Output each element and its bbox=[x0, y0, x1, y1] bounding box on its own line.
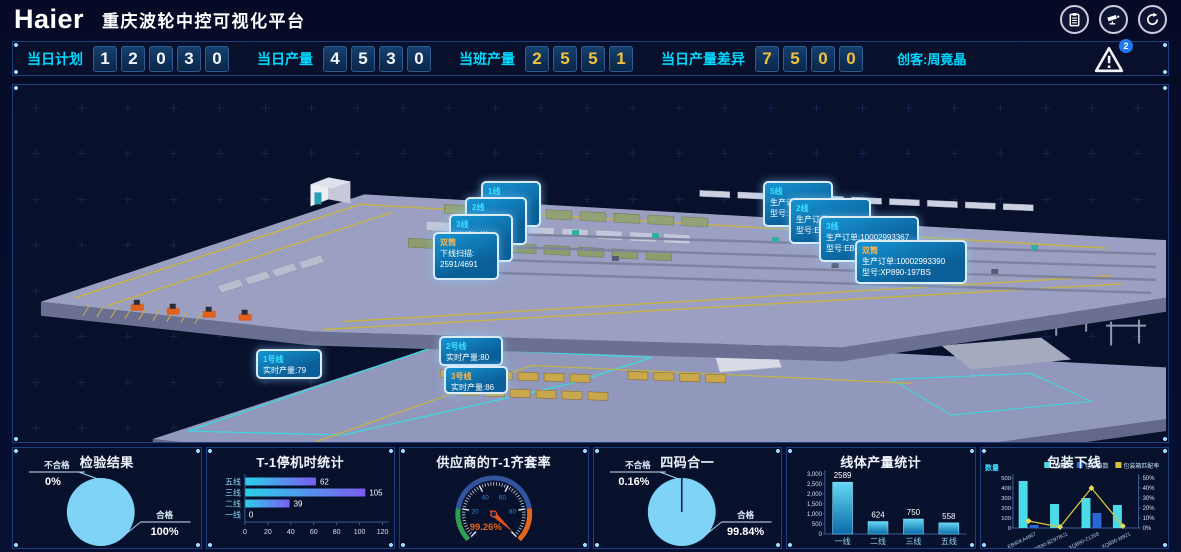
callout-line3-output[interactable]: 3号线 实时产量:86 bbox=[444, 366, 508, 394]
svg-text:60: 60 bbox=[499, 495, 507, 502]
kpi-shift-output: 当班产量 2 5 5 1 bbox=[459, 46, 635, 72]
callout-line2-output[interactable]: 2号线 实时产量:80 bbox=[439, 336, 503, 366]
svg-text:62: 62 bbox=[319, 477, 328, 486]
svg-text:99.26%: 99.26% bbox=[470, 522, 503, 533]
svg-text:20%: 20% bbox=[1142, 506, 1155, 512]
cctv-icon bbox=[1106, 12, 1121, 27]
svg-text:80: 80 bbox=[332, 529, 340, 536]
header: Haier 重庆波轮中控可视化平台 bbox=[0, 0, 1181, 38]
svg-text:120: 120 bbox=[376, 529, 388, 536]
kpi-output-gap: 当日产量差异 7 5 0 0 bbox=[661, 46, 865, 72]
digit-box: 0 bbox=[811, 46, 835, 72]
bar bbox=[1081, 498, 1090, 528]
refresh-icon[interactable] bbox=[1138, 5, 1167, 34]
svg-text:500: 500 bbox=[812, 522, 823, 528]
svg-text:10%: 10% bbox=[1142, 516, 1155, 522]
callout-line: 下线扫描: bbox=[440, 248, 492, 259]
kpi-label: 当日产量 bbox=[257, 49, 313, 69]
callout-title: 3号线 bbox=[451, 371, 501, 382]
factory-3d-view bbox=[13, 85, 1168, 442]
svg-text:三线: 三线 bbox=[905, 536, 921, 546]
callout-title: 1线 bbox=[488, 186, 534, 197]
svg-text:2589: 2589 bbox=[834, 471, 852, 480]
svg-text:EB80KA4867: EB80KA4867 bbox=[1006, 531, 1037, 548]
bar bbox=[1123, 528, 1132, 529]
digit-box: 1 bbox=[609, 46, 633, 72]
report-icon[interactable] bbox=[1060, 5, 1089, 34]
clipboard-icon bbox=[1067, 12, 1082, 27]
kpi-label: 当日计划 bbox=[27, 49, 83, 69]
digit-box: 5 bbox=[581, 46, 605, 72]
creator-label: 创客:周竟晶 bbox=[897, 49, 966, 68]
svg-text:40: 40 bbox=[482, 495, 490, 502]
svg-text:1,500: 1,500 bbox=[807, 502, 823, 508]
digit-box: 0 bbox=[839, 46, 863, 72]
digit-box: 2 bbox=[525, 46, 549, 72]
gauge-segment bbox=[458, 508, 469, 539]
svg-text:100%: 100% bbox=[151, 526, 179, 538]
page-title: 重庆波轮中控可视化平台 bbox=[102, 7, 306, 32]
digit-box: 0 bbox=[205, 46, 229, 72]
dashboard: Haier 重庆波轮中控可视化平台 当日计划 1 2 0 3 0 当日产量 4 bbox=[0, 0, 1181, 552]
callout-twin-tub-scan[interactable]: 双筒 下线扫描: 2591/4691 bbox=[433, 232, 499, 280]
callout-title: 双筒 bbox=[862, 245, 960, 256]
charts-row: 检验结果 不合格0%合格100% T-1停机时统计 五线62三线105二线39一… bbox=[12, 447, 1169, 549]
kpi-label: 当班产量 bbox=[459, 49, 515, 69]
svg-text:2,000: 2,000 bbox=[807, 492, 823, 498]
callout-line: 生产订单:10002993390 bbox=[862, 256, 960, 267]
bar bbox=[1092, 513, 1101, 528]
callout-line: 实时产量:86 bbox=[451, 382, 501, 393]
digit-box: 5 bbox=[553, 46, 577, 72]
pie-slice bbox=[67, 478, 135, 546]
svg-text:558: 558 bbox=[942, 512, 956, 521]
digit-box: 5 bbox=[351, 46, 375, 72]
chart-title: 四码合一 bbox=[594, 452, 782, 471]
svg-text:39: 39 bbox=[293, 499, 302, 508]
svg-text:1,000: 1,000 bbox=[807, 512, 823, 518]
refresh-arrow-icon bbox=[1145, 12, 1160, 27]
bar bbox=[1029, 525, 1038, 528]
chart-title: 供应商的T-1齐套率 bbox=[400, 452, 588, 471]
svg-text:105: 105 bbox=[369, 488, 383, 497]
svg-text:0%: 0% bbox=[45, 476, 61, 488]
callout-title: 双筒 bbox=[440, 237, 492, 248]
callout-title: 3线 bbox=[456, 219, 506, 230]
gauge-segment bbox=[519, 508, 530, 539]
callout-line: 2591/4691 bbox=[440, 259, 492, 270]
callout-title: 2线 bbox=[796, 203, 864, 214]
chart-packing-offline-panel: 包装下线 数量01002003004005000%10%20%30%40%50%… bbox=[980, 447, 1170, 549]
digit-box: 0 bbox=[407, 46, 431, 72]
rate-line bbox=[1028, 488, 1122, 527]
svg-text:100: 100 bbox=[1001, 516, 1011, 522]
digit-box: 1 bbox=[93, 46, 117, 72]
svg-text:0: 0 bbox=[819, 532, 823, 538]
alert-warning-button[interactable]: 2 bbox=[1092, 44, 1126, 74]
callout-line: 实时产量:79 bbox=[263, 365, 315, 376]
svg-text:40%: 40% bbox=[1142, 486, 1155, 492]
bar bbox=[833, 482, 853, 534]
svg-text:500: 500 bbox=[1001, 476, 1011, 482]
svg-text:三线: 三线 bbox=[224, 487, 240, 497]
chart-title: T-1停机时统计 bbox=[207, 452, 395, 471]
callout-title: 2线 bbox=[472, 202, 520, 213]
bar bbox=[244, 478, 315, 486]
callout-title: 2号线 bbox=[446, 341, 496, 352]
svg-text:3,000: 3,000 bbox=[807, 472, 823, 478]
svg-text:五线: 五线 bbox=[941, 536, 957, 546]
digit-box: 2 bbox=[121, 46, 145, 72]
svg-text:XQB80-Z1268: XQB80-Z1268 bbox=[1067, 531, 1099, 548]
chart-title: 包装下线 bbox=[981, 452, 1169, 471]
svg-text:200: 200 bbox=[1001, 506, 1011, 512]
bar bbox=[903, 519, 923, 534]
digit-box: 4 bbox=[323, 46, 347, 72]
svg-text:0%: 0% bbox=[1142, 526, 1151, 532]
alert-count-badge: 2 bbox=[1119, 39, 1133, 53]
kpi-daily-output: 当日产量 4 5 3 0 bbox=[257, 46, 433, 72]
callout-line: 实时产量:80 bbox=[446, 352, 496, 363]
callout-line1-output[interactable]: 1号线 实时产量:79 bbox=[256, 349, 322, 379]
chart-four-codes-panel: 四码合一 不合格0.16%合格99.84% bbox=[593, 447, 783, 549]
svg-text:0.16%: 0.16% bbox=[618, 476, 649, 488]
digit-box: 5 bbox=[783, 46, 807, 72]
digit-box: 3 bbox=[177, 46, 201, 72]
svg-text:2,500: 2,500 bbox=[807, 482, 823, 488]
svg-text:750: 750 bbox=[907, 508, 921, 517]
chart-supplier-rate-panel: 供应商的T-1齐套率 2040608099.26% bbox=[399, 447, 589, 549]
callout-title: 3线 bbox=[826, 221, 912, 232]
svg-text:合格: 合格 bbox=[155, 510, 173, 520]
svg-text:合格: 合格 bbox=[736, 510, 754, 520]
kpi-bar: 当日计划 1 2 0 3 0 当日产量 4 5 3 0 当班产量 2 5 5 1… bbox=[12, 41, 1169, 76]
camera-icon[interactable] bbox=[1099, 5, 1128, 34]
chart-title: 线体产量统计 bbox=[787, 452, 975, 471]
kpi-daily-plan: 当日计划 1 2 0 3 0 bbox=[27, 46, 231, 72]
header-icons bbox=[1060, 5, 1167, 34]
svg-text:80: 80 bbox=[509, 509, 517, 516]
svg-text:300: 300 bbox=[1001, 496, 1011, 502]
svg-text:0: 0 bbox=[248, 510, 253, 519]
svg-text:60: 60 bbox=[309, 529, 317, 536]
digit-box: 3 bbox=[379, 46, 403, 72]
svg-text:二线: 二线 bbox=[224, 498, 240, 508]
svg-text:99.84%: 99.84% bbox=[727, 526, 764, 538]
kpi-label: 当日产量差异 bbox=[661, 49, 745, 69]
callout-title: 1号线 bbox=[263, 354, 315, 365]
svg-text:624: 624 bbox=[871, 511, 885, 520]
svg-text:五线: 五线 bbox=[224, 476, 240, 486]
bar bbox=[1050, 504, 1059, 528]
svg-text:一线: 一线 bbox=[224, 509, 240, 519]
svg-text:400: 400 bbox=[1001, 486, 1011, 492]
svg-text:20: 20 bbox=[263, 529, 271, 536]
digit-box: 0 bbox=[149, 46, 173, 72]
chart-title: 检验结果 bbox=[13, 452, 201, 471]
chart-line-output-panel: 线体产量统计 05001,0001,5002,0002,5003,0002589… bbox=[786, 447, 976, 549]
digit-box: 7 bbox=[755, 46, 779, 72]
chart-downtime-panel: T-1停机时统计 五线62三线105二线39一线0020406080100120 bbox=[206, 447, 396, 549]
bar bbox=[244, 500, 289, 508]
bar bbox=[244, 489, 364, 497]
svg-text:0: 0 bbox=[1007, 526, 1010, 532]
bar bbox=[868, 522, 888, 534]
callout-line: 型号:XP890-197BS bbox=[862, 267, 960, 278]
svg-text:二线: 二线 bbox=[870, 536, 886, 546]
callout-twin-tub-order[interactable]: 双筒 生产订单:10002993390 型号:XP890-197BS bbox=[855, 240, 967, 284]
svg-text:40: 40 bbox=[286, 529, 294, 536]
svg-text:XQB90-M921: XQB90-M921 bbox=[1100, 531, 1131, 548]
callout-title: 5线 bbox=[770, 186, 826, 197]
svg-text:一线: 一线 bbox=[835, 536, 851, 546]
svg-text:100: 100 bbox=[353, 529, 365, 536]
svg-text:50%: 50% bbox=[1142, 476, 1155, 482]
svg-text:20: 20 bbox=[471, 509, 479, 516]
svg-text:30%: 30% bbox=[1142, 496, 1155, 502]
factory-panel: 1线 2线 下线扫描: 3线 下线扫描: 双筒 下线扫描: 2591/4691 … bbox=[12, 84, 1169, 443]
chart-inspection-result-panel: 检验结果 不合格0%合格100% bbox=[12, 447, 202, 549]
svg-text:0: 0 bbox=[242, 529, 246, 536]
haier-logo: Haier bbox=[14, 4, 84, 35]
bar bbox=[939, 523, 959, 534]
